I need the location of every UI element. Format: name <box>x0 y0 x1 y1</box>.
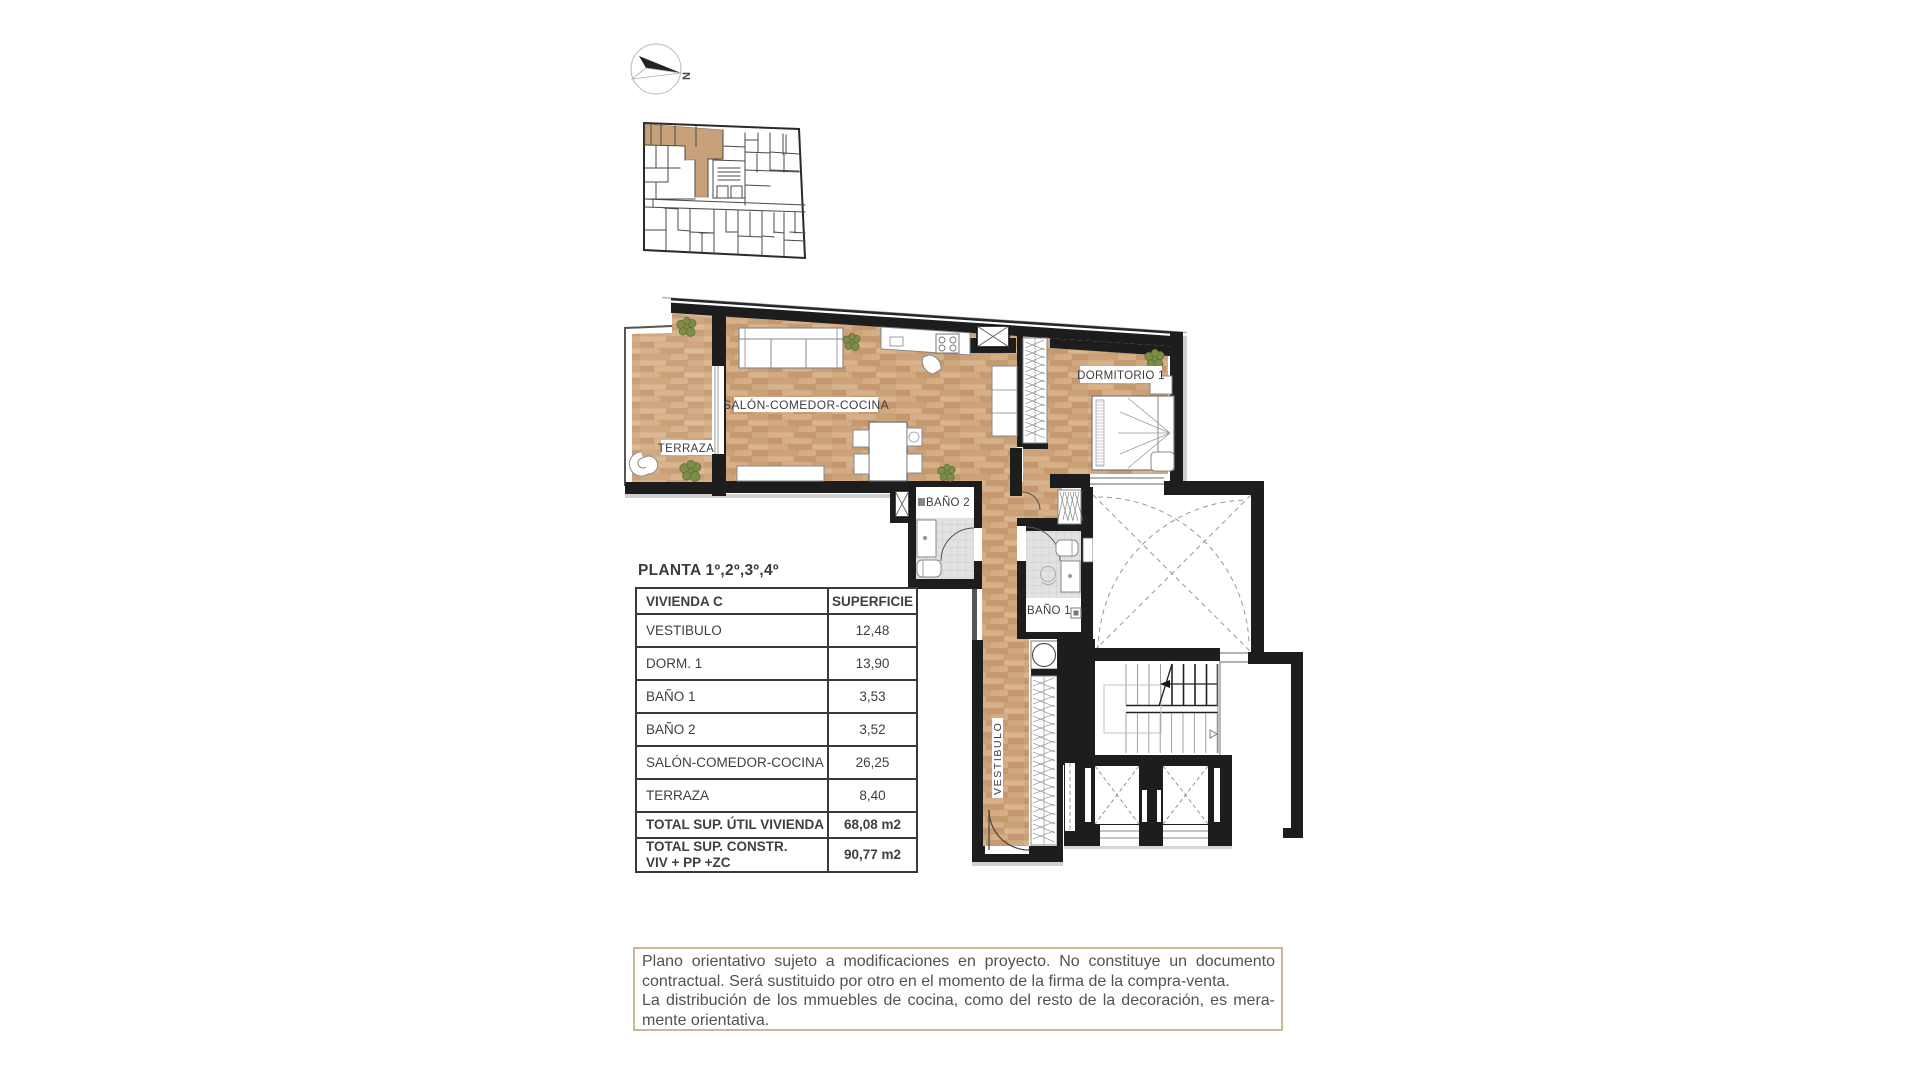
svg-text:BAÑO 2: BAÑO 2 <box>926 496 970 509</box>
svg-text:N: N <box>681 72 693 80</box>
svg-text:SALÓN-COMEDOR-COCINA: SALÓN-COMEDOR-COCINA <box>723 397 889 412</box>
svg-text:DORMITORIO 1: DORMITORIO 1 <box>1077 370 1165 382</box>
svg-text:BAÑO 1: BAÑO 1 <box>1027 604 1071 617</box>
svg-text:VESTIBULO: VESTIBULO <box>992 722 1004 795</box>
svg-text:TERRAZA: TERRAZA <box>658 443 714 455</box>
